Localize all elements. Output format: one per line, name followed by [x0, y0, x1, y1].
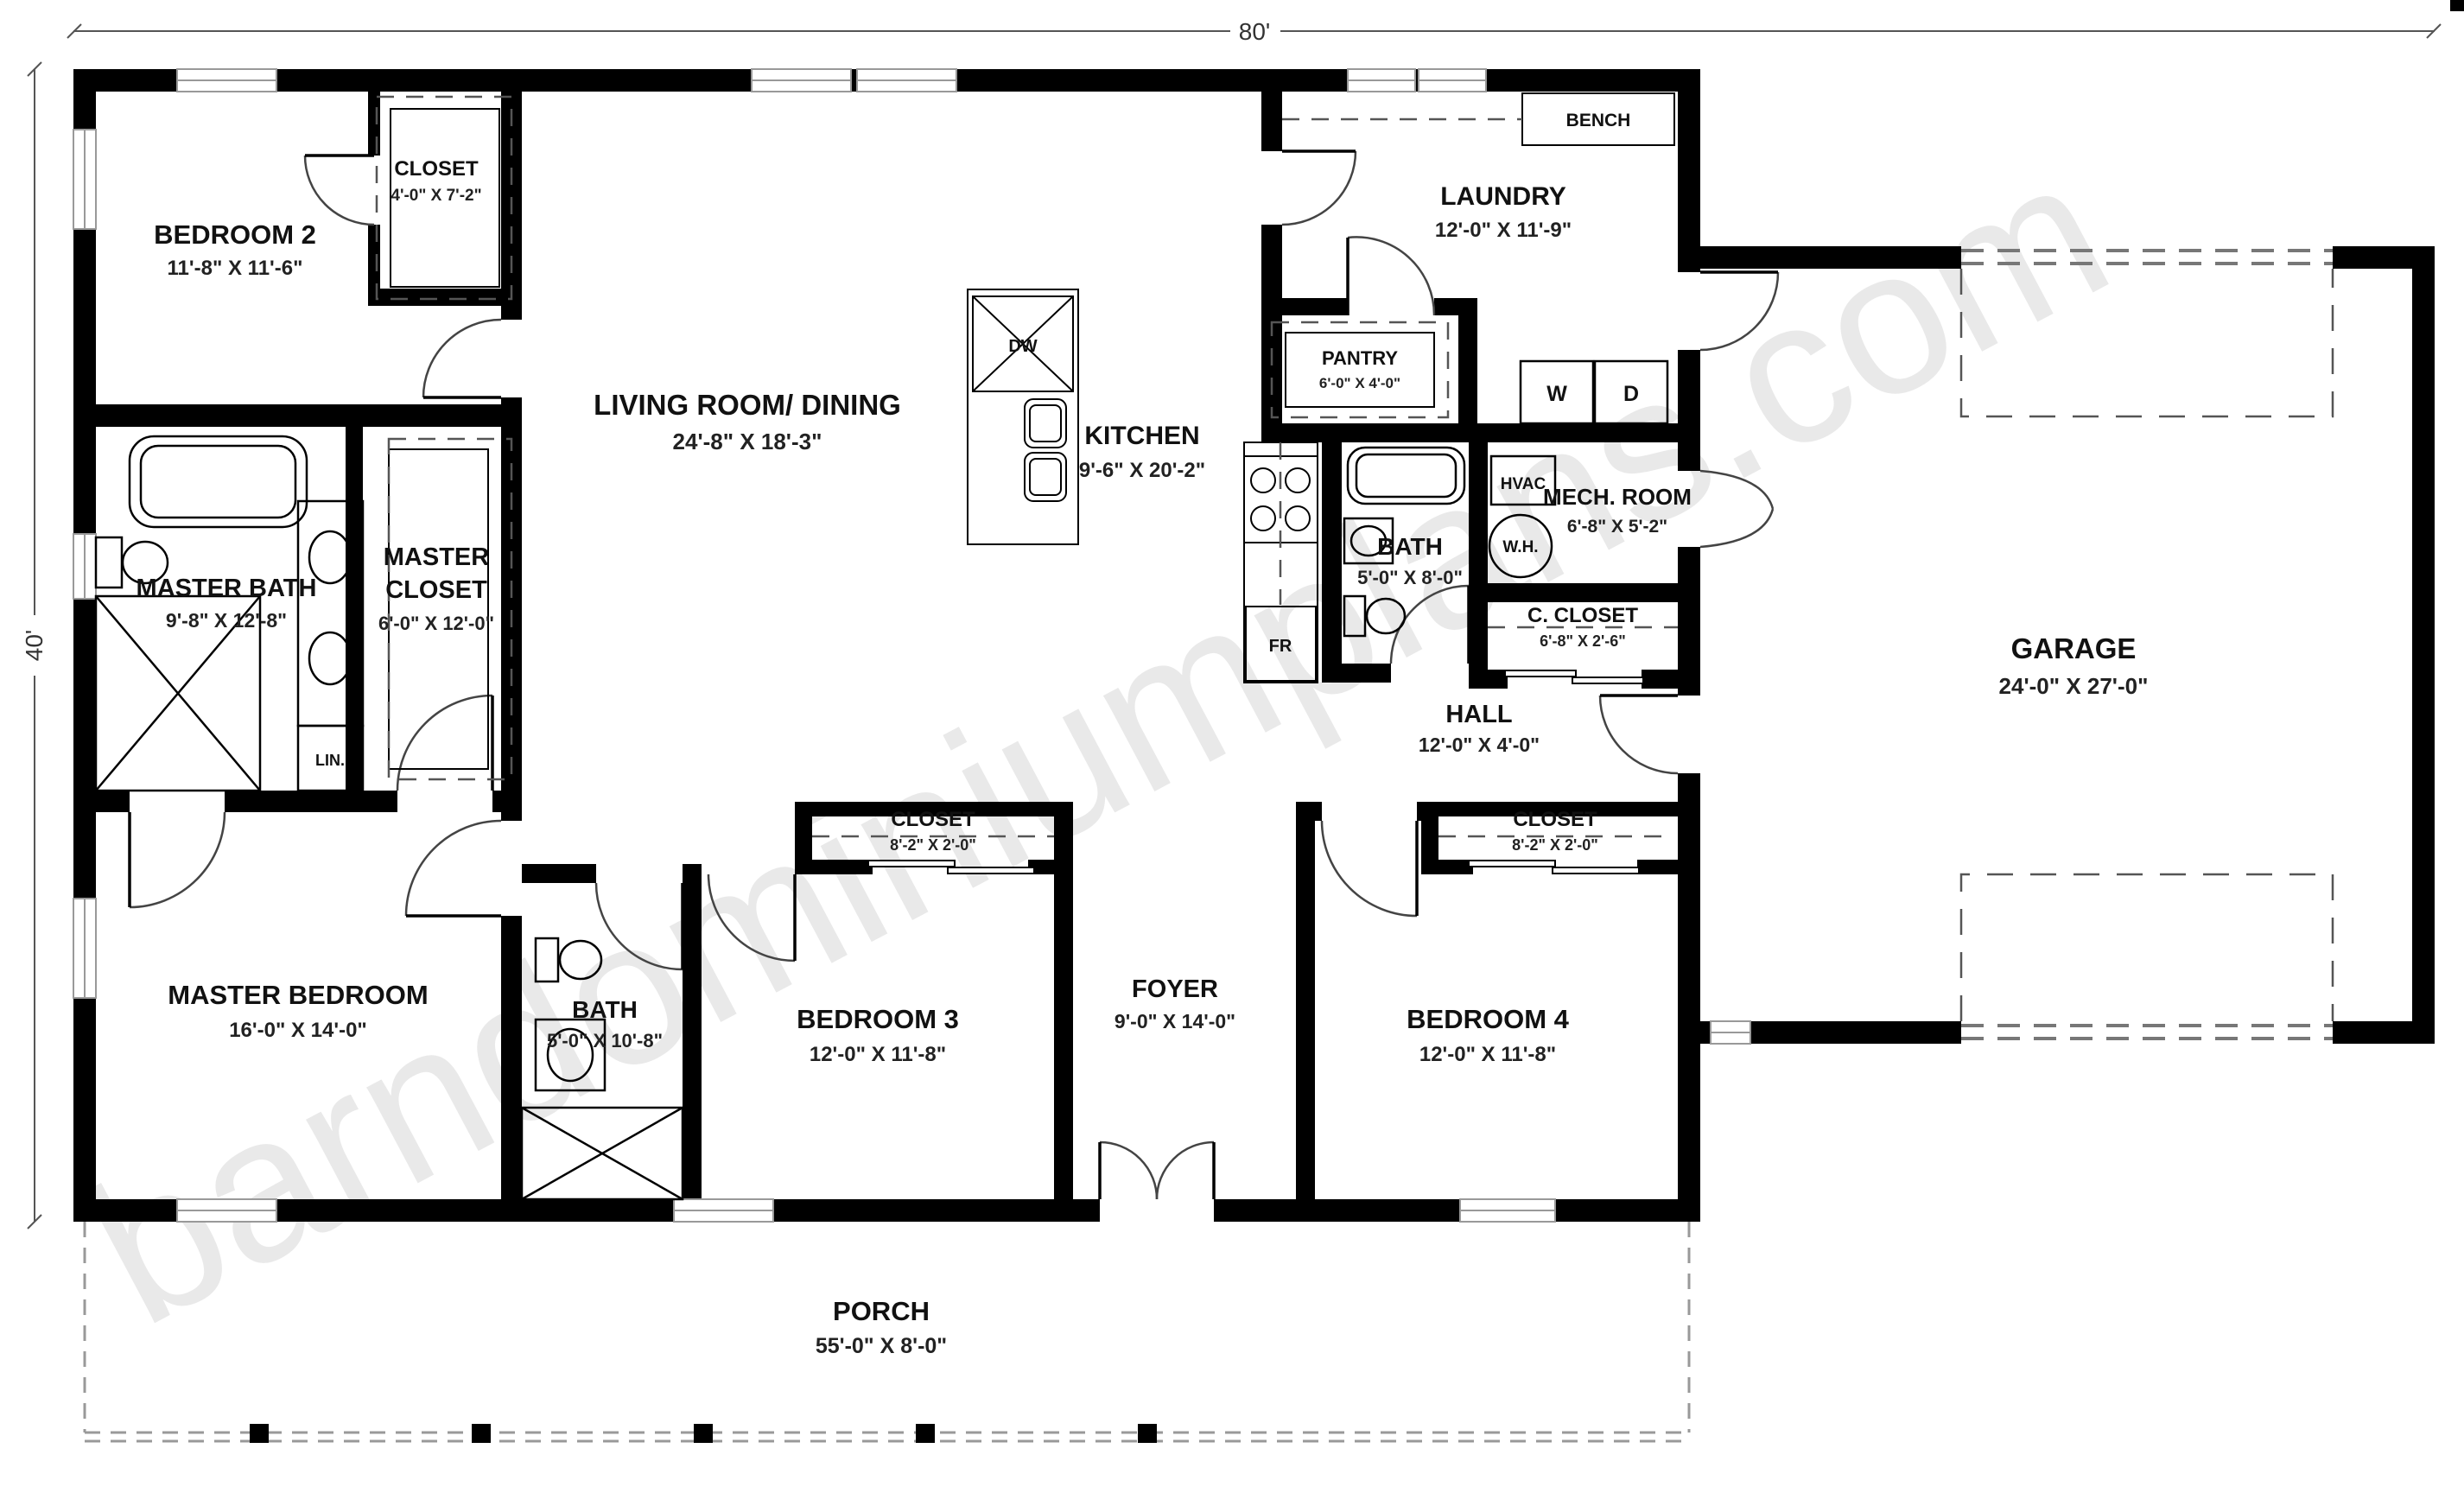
pantry-shelf — [1286, 333, 1434, 407]
master-bath-tub-inner — [141, 446, 295, 518]
garage-hall-door-arc — [1600, 696, 1678, 773]
svg-text:6'-8" X 2'-6": 6'-8" X 2'-6" — [1540, 632, 1626, 650]
svg-text:CLOSET: CLOSET — [1513, 808, 1597, 831]
window — [752, 69, 851, 92]
floor-plan-drawing: barndominiumplans.com 80' 40' — [0, 0, 2464, 1512]
svg-text:PANTRY: PANTRY — [1322, 347, 1398, 369]
room-label-living: LIVING ROOM/ DINING 24'-8" X 18'-3" — [594, 389, 901, 454]
room-label-hall: HALL 12'-0" X 4'-0" — [1419, 701, 1540, 756]
svg-text:55'-0" X 8'-0": 55'-0" X 8'-0" — [816, 1334, 947, 1358]
window — [1419, 69, 1486, 92]
room-label-bedroom3: BEDROOM 3 12'-0" X 11'-8" — [797, 1004, 959, 1066]
room-label-bedroom2: BEDROOM 2 11'-8" X 11'-6" — [154, 219, 316, 280]
corner-mark — [2450, 0, 2464, 11]
svg-text:8'-2" X 2'-0": 8'-2" X 2'-0" — [890, 836, 976, 854]
window — [857, 69, 956, 92]
pantry-door-arc — [1348, 237, 1434, 315]
svg-text:MASTER BATH: MASTER BATH — [137, 575, 317, 602]
bedroom4-door-arc — [1322, 821, 1417, 916]
dimension-height-label: 40' — [21, 630, 48, 662]
room-label-garage: GARAGE 24'-0" X 27'-0" — [1999, 632, 2149, 699]
svg-text:6'-8" X 5'-2": 6'-8" X 5'-2" — [1567, 517, 1667, 537]
floor-plan-page: barndominiumplans.com 80' 40' — [0, 0, 2464, 1512]
room-label-bedroom4: BEDROOM 4 12'-0" X 11'-8" — [1407, 1004, 1570, 1066]
svg-text:HALL: HALL — [1445, 701, 1512, 728]
svg-text:6'-0" X 12'-0": 6'-0" X 12'-0" — [378, 613, 494, 634]
svg-text:24'-8" X 18'-3": 24'-8" X 18'-3" — [673, 429, 822, 454]
hvac-label: HVAC — [1501, 475, 1546, 493]
window — [1348, 69, 1415, 92]
window — [73, 534, 96, 599]
svg-text:MECH. ROOM: MECH. ROOM — [1543, 484, 1692, 510]
svg-text:12'-0" X 4'-0": 12'-0" X 4'-0" — [1419, 734, 1540, 756]
window — [1711, 1021, 1750, 1044]
window — [177, 69, 276, 92]
svg-text:5'-0" X 10'-8": 5'-0" X 10'-8" — [547, 1030, 663, 1051]
svg-text:11'-8" X 11'-6": 11'-8" X 11'-6" — [168, 257, 303, 280]
svg-text:8'-2" X 2'-0": 8'-2" X 2'-0" — [1512, 836, 1598, 854]
svg-text:BATH: BATH — [572, 996, 638, 1023]
svg-text:CLOSET: CLOSET — [385, 576, 487, 604]
svg-text:16'-0" X 14'-0": 16'-0" X 14'-0" — [229, 1019, 367, 1042]
room-label-bedroom2-closet: CLOSET 4'-0" X 7'-2" — [391, 157, 481, 205]
svg-text:BEDROOM 2: BEDROOM 2 — [154, 219, 316, 250]
room-label-porch: PORCH 55'-0" X 8'-0" — [816, 1296, 947, 1358]
svg-text:MASTER: MASTER — [384, 543, 490, 571]
svg-text:12'-0" X 11'-9": 12'-0" X 11'-9" — [1435, 219, 1572, 242]
washer-label: W — [1546, 382, 1567, 406]
room-label-bedroom4-closet: CLOSET 8'-2" X 2'-0" — [1512, 808, 1598, 854]
svg-text:MASTER BEDROOM: MASTER BEDROOM — [168, 980, 428, 1010]
laundry-door-arc — [1282, 151, 1356, 225]
room-label-pantry: PANTRY 6'-0" X 4'-0" — [1319, 347, 1400, 391]
svg-text:CLOSET: CLOSET — [891, 808, 975, 831]
kitchen-island — [968, 289, 1078, 544]
svg-text:24'-0" X 27'-0": 24'-0" X 27'-0" — [1999, 673, 2149, 699]
pantry-rod — [1272, 322, 1448, 417]
master-bedroom-door-arc — [406, 821, 501, 916]
room-label-foyer: FOYER 9'-0" X 14'-0" — [1115, 975, 1235, 1032]
bedroom2-closet-door-arc — [305, 156, 374, 225]
room-label-c-closet: C. CLOSET 6'-8" X 2'-6" — [1527, 604, 1638, 650]
room-label-master-bath: MASTER BATH 9'-8" X 12'-8" — [137, 575, 317, 632]
master-closet-shelf — [389, 449, 488, 769]
master-bath-door-arc — [130, 812, 225, 907]
svg-text:PORCH: PORCH — [833, 1296, 930, 1326]
svg-text:BATH: BATH — [1377, 533, 1443, 560]
entry-door-right-arc — [1157, 1142, 1214, 1199]
window — [73, 899, 96, 998]
svg-text:4'-0" X 7'-2": 4'-0" X 7'-2" — [391, 187, 481, 205]
window — [177, 1199, 276, 1222]
svg-text:BEDROOM 3: BEDROOM 3 — [797, 1004, 959, 1034]
dryer-label: D — [1623, 382, 1639, 406]
svg-text:FOYER: FOYER — [1132, 975, 1218, 1003]
svg-text:LIVING ROOM/ DINING: LIVING ROOM/ DINING — [594, 389, 901, 421]
svg-text:LAUNDRY: LAUNDRY — [1440, 182, 1566, 211]
svg-text:BEDROOM 4: BEDROOM 4 — [1407, 1004, 1570, 1034]
dimension-width-label: 80' — [1239, 18, 1271, 45]
master-closet-door-arc — [397, 696, 492, 791]
svg-text:KITCHEN: KITCHEN — [1084, 422, 1199, 450]
svg-text:GARAGE: GARAGE — [2011, 632, 2137, 664]
svg-text:9'-8" X 12'-8": 9'-8" X 12'-8" — [166, 609, 287, 632]
svg-text:12'-0" X 11'-8": 12'-0" X 11'-8" — [1419, 1043, 1556, 1066]
room-label-master-closet: MASTER CLOSET 6'-0" X 12'-0" — [378, 543, 494, 634]
room-label-kitchen: KITCHEN 9'-6" X 20'-2" — [1079, 422, 1205, 482]
window — [73, 130, 96, 229]
bedroom2-door-arc — [423, 320, 501, 397]
svg-text:9'-6" X 20'-2": 9'-6" X 20'-2" — [1079, 459, 1205, 482]
window — [674, 1199, 773, 1222]
dishwasher-label: DW — [1008, 337, 1037, 356]
svg-text:5'-0" X 8'-0": 5'-0" X 8'-0" — [1357, 567, 1463, 588]
bench-label: BENCH — [1566, 111, 1631, 130]
window — [1460, 1199, 1555, 1222]
svg-text:C. CLOSET: C. CLOSET — [1527, 604, 1638, 627]
linen-label: LIN. — [315, 752, 345, 769]
water-heater-label: W.H. — [1502, 538, 1538, 556]
svg-text:9'-0" X 14'-0": 9'-0" X 14'-0" — [1115, 1010, 1235, 1032]
master-bath-tub — [130, 436, 307, 527]
svg-text:CLOSET: CLOSET — [394, 157, 479, 181]
room-label-bedroom3-closet: CLOSET 8'-2" X 2'-0" — [890, 808, 976, 854]
entry-door-left-arc — [1100, 1142, 1157, 1199]
svg-text:6'-0" X 4'-0": 6'-0" X 4'-0" — [1319, 375, 1400, 391]
room-label-laundry: LAUNDRY 12'-0" X 11'-9" — [1435, 182, 1572, 242]
svg-text:12'-0" X 11'-8": 12'-0" X 11'-8" — [810, 1043, 946, 1066]
fridge-label: FR — [1269, 637, 1292, 656]
